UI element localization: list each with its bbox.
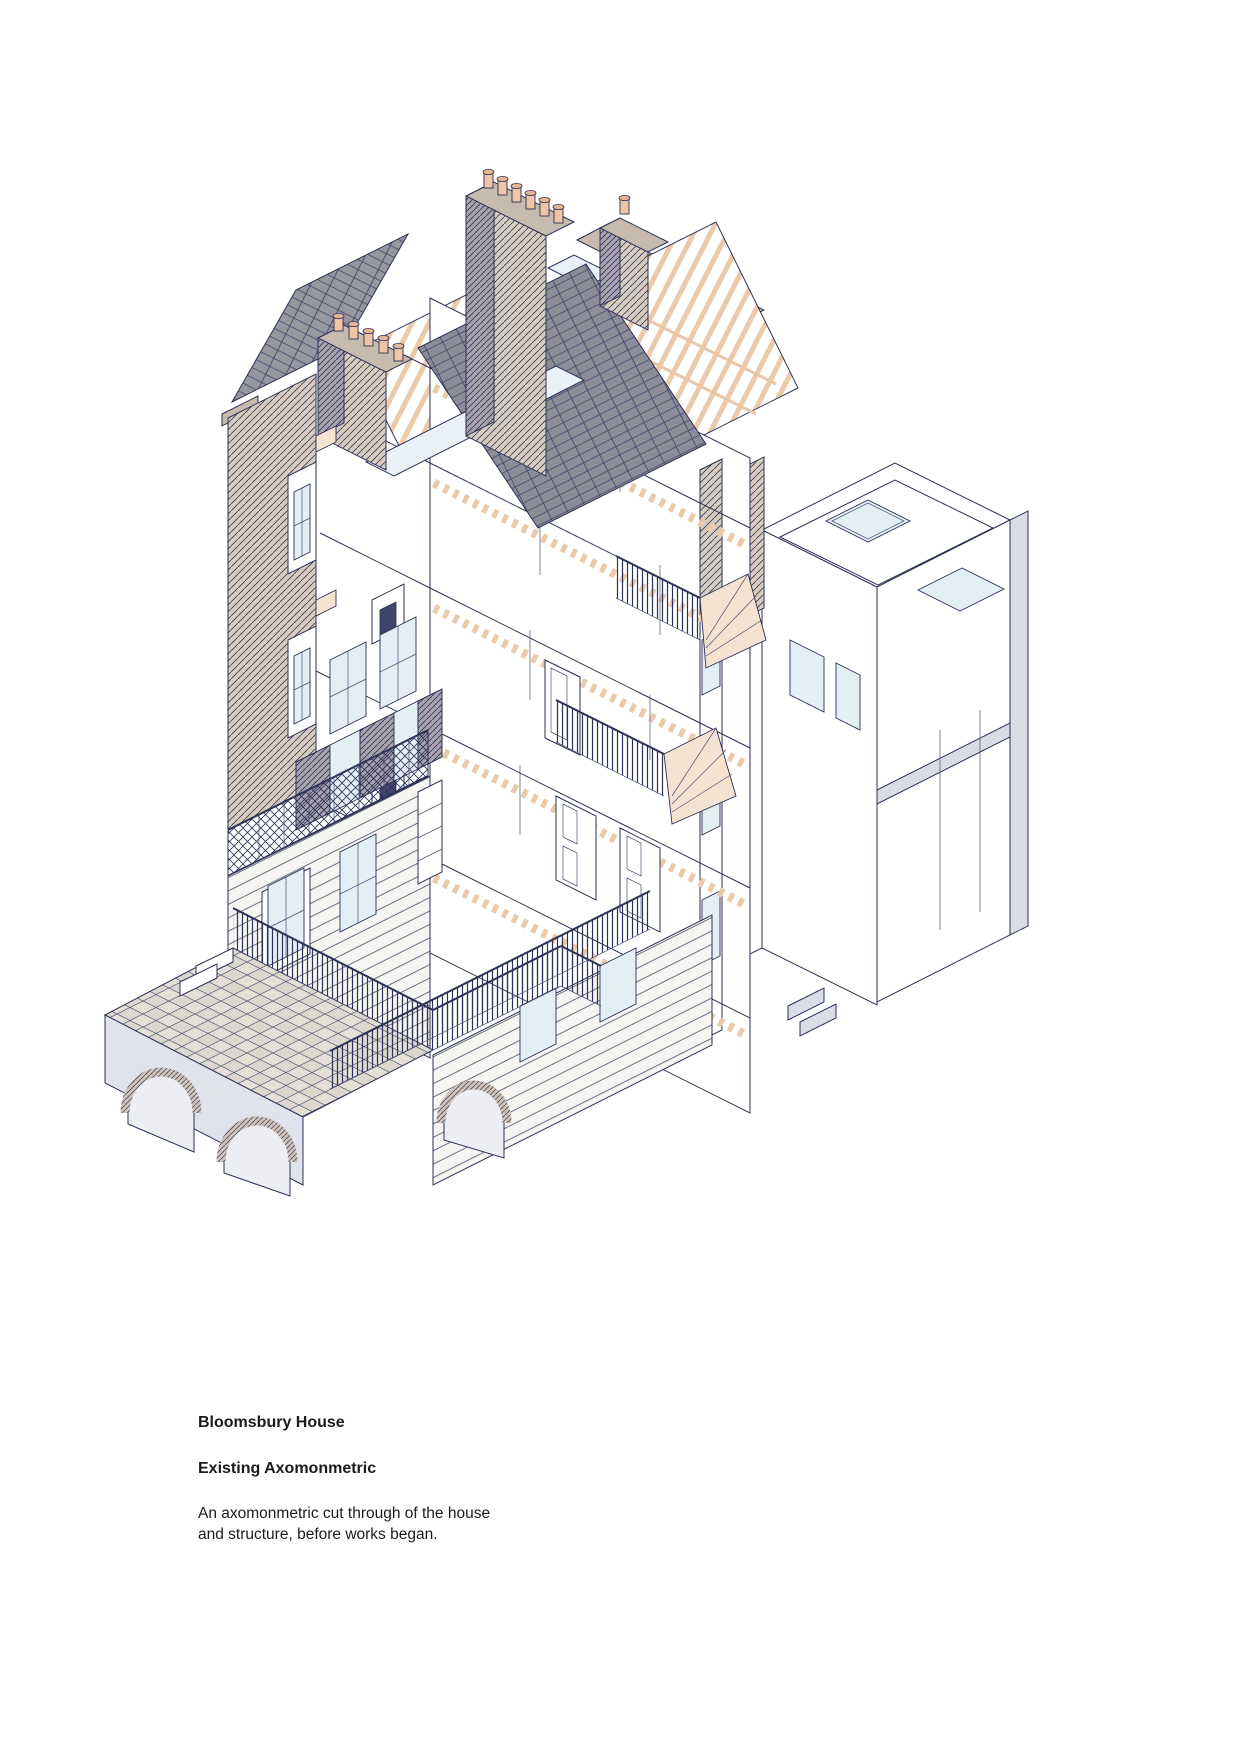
chimney-pot-cap (619, 195, 630, 200)
extension-window (836, 663, 860, 730)
corbel-block (316, 590, 336, 616)
page-description: An axomonmetric cut through of the house… (198, 1503, 510, 1545)
extension-cut-wall (1010, 511, 1028, 935)
rear-extension (742, 463, 1028, 1036)
axonometric-drawing (0, 0, 1241, 1754)
caption-block: Bloomsbury House Existing Axomonmetric A… (198, 1412, 510, 1545)
page-subtitle: Existing Axomonmetric (198, 1458, 510, 1479)
sash-window-box (288, 626, 316, 738)
page-title: Bloomsbury House (198, 1412, 510, 1433)
extension-front-face (762, 530, 877, 1005)
portfolio-page: Bloomsbury House Existing Axomonmetric A… (0, 0, 1241, 1754)
sash-window-box (288, 462, 316, 574)
